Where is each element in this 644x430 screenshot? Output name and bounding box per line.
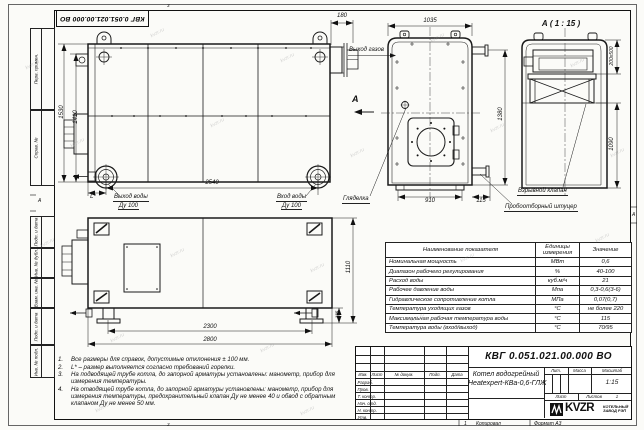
param-value: 70/95 [580, 323, 632, 332]
tb-mass-label: Масса [568, 368, 591, 373]
dim-1110: 1110 [346, 247, 352, 287]
col-header-units: Единицы измерения [536, 243, 580, 258]
param-name: Температура воды (вход/выход) [386, 323, 536, 332]
param-name: Рабочее давление воды [386, 286, 536, 295]
note-text: Все размеры для справок, допустимые откл… [71, 356, 346, 363]
explosion-valve [524, 50, 596, 103]
param-name: Расход воды [386, 276, 536, 285]
dim-2800: 2800 [190, 337, 230, 343]
doc-number-rotated-box: КВГ 0.051.021.00.000 ВО [56, 10, 149, 27]
note-item: 4.На отводящей трубе котла, до запорной … [58, 386, 346, 407]
view-a-letter: А [352, 94, 359, 104]
burner-flange-plan [62, 240, 88, 284]
note-number: 1. [58, 356, 71, 363]
note-item: 2.L* – размер выполняется согласно требо… [58, 364, 346, 371]
param-name: Гидравлическое сопротивление котла [386, 295, 536, 304]
margin-box-cap: Подп. и дата [31, 309, 42, 344]
kvzr-logo-text: KVZR [565, 402, 594, 414]
burner-opening [408, 118, 459, 166]
param-value: 0,3-0,6(3-6) [580, 286, 632, 295]
bolt-dots [111, 47, 312, 117]
zone-marker-right: А [632, 212, 635, 218]
sheets-count: 1 [608, 394, 626, 399]
margin-label: Подп. и дата [34, 312, 39, 341]
label-gas-outlet: Выход газов [349, 47, 384, 53]
note-number: 3. [58, 371, 71, 385]
margin-box-perv-primen: Перв. примен. [30, 28, 55, 110]
tb-row-utv: Утв. [358, 415, 368, 420]
param-name: Температура уходящих газов [386, 304, 536, 313]
dim-180: 180 [326, 13, 358, 19]
param-units: °С [536, 304, 580, 313]
copied-label: Копировал [476, 421, 501, 427]
dim-185: 185 [335, 300, 340, 330]
table-row: Температура уходящих газов°Сне более 220 [386, 304, 632, 313]
margin-box-cap: Взам. инв. № [31, 279, 42, 307]
param-units: куб.м/ч [536, 276, 580, 285]
margin-label: Подп. и дата [34, 218, 39, 247]
table-row: Рабочее давление водыМпа0,3-0,6(3-6) [386, 286, 632, 295]
margin-box-podp-data-2: Подп. и дата [30, 308, 55, 345]
dim-910: 910 [412, 198, 448, 204]
param-value: 0,6 [580, 258, 632, 267]
param-value: 0,07(0,7) [580, 295, 632, 304]
tb-col-izm: Изм. [356, 372, 370, 377]
gas-flow-arrow [390, 53, 396, 57]
margin-label: Перв. примен. [34, 54, 39, 85]
drawing-sheet: Перв. примен. Справ. № Подп. и дата Инв.… [0, 0, 644, 430]
param-value: 21 [580, 276, 632, 285]
dim-1530: 1530 [59, 92, 65, 132]
param-value: 40-100 [580, 267, 632, 276]
detail-a-title: А ( 1 : 15 ) [533, 19, 589, 28]
note-text: На отводящей трубе котла, до запорной ар… [71, 386, 346, 407]
table-row: Номинальная мощностьМВт0,6 [386, 258, 632, 267]
tb-col-list: Лист [370, 372, 384, 377]
col-header-name: Наименование показателя [386, 243, 536, 258]
note-number: 2. [58, 364, 71, 371]
param-name: Номинальная мощность [386, 258, 536, 267]
table-row: Температура воды (вход/выход)°С70/95 [386, 323, 632, 332]
zone-number-bottom: 1 [464, 421, 467, 427]
scale-value: 1:15 [591, 379, 633, 386]
tb-lit-label: Лит. [544, 368, 568, 373]
label-water-inlet: Вход воды [276, 194, 307, 202]
margin-label: Справ. № [34, 138, 39, 159]
margin-label: Инв. № подл. [34, 347, 39, 376]
tb-row-nachotd: Нач. отд. [358, 401, 377, 406]
label-water-outlet: Выход воды [113, 194, 149, 202]
dim-115: 115 [472, 198, 490, 204]
margin-box-inv-podl: Инв. № подл. [30, 345, 55, 378]
kvzr-logo-caption-line2: ЗАВОД РЭП [603, 409, 628, 414]
fold-mark-bottom: 3 [167, 422, 170, 427]
product-name-line1: Котел водогрейный [468, 371, 544, 378]
dim-2300: 2300 [190, 324, 230, 330]
label-explosion-valve: Взрывной клапан [517, 188, 568, 196]
note-item: 3.На подводящей трубе котла, до запорной… [58, 371, 346, 385]
plan-opening [124, 244, 160, 292]
label-sight-glass: Гляделка [342, 196, 370, 204]
note-number: 4. [58, 386, 71, 407]
parameters-table: Наименование показателя Единицы измерени… [385, 242, 632, 333]
param-units: МВт [536, 258, 580, 267]
detail-view-a [522, 28, 621, 196]
dim-200x500: 200х500 [609, 36, 615, 76]
margin-label: Взам. инв. № [34, 279, 39, 307]
tb-row-prov: Пров. [358, 387, 369, 392]
centerlines [381, 27, 480, 198]
label-water-inlet-dn: Ду 100 [281, 203, 302, 211]
margin-box-cap: Перв. примен. [31, 29, 42, 109]
margin-box-cap: Инв. № подл. [31, 346, 42, 377]
dim-l-star: L* [86, 194, 100, 200]
dim-1035: 1035 [410, 18, 450, 24]
doc-number: КВГ 0.051.021.00.000 ВО [468, 351, 629, 362]
table-row: Расход водыкуб.м/ч21 [386, 276, 632, 285]
fold-mark-top: 3 [167, 3, 170, 8]
doc-number-rotated: КВГ 0.051.021.00.000 ВО [60, 15, 145, 22]
margin-box-sprav: Справ. № [30, 110, 55, 186]
side-fitting [76, 54, 88, 66]
col-header-value: Значение [580, 243, 632, 258]
zone-marker-left: А [38, 198, 41, 204]
table-row: Диапазон рабочего регулирования%40-100 [386, 267, 632, 276]
margin-label: Инв. № дубл. [34, 249, 39, 277]
note-text: На подводящей трубе котла, до запорной а… [71, 371, 346, 385]
margin-box-podp-data-1: Подп. и дата [30, 216, 55, 248]
tb-row-razrab: Разраб. [358, 380, 374, 385]
dim-1090: 1090 [609, 124, 615, 164]
product-name-line2: Heatexpert-КВа-0,6-ГЛЖ [468, 380, 544, 387]
tb-row-nkontr: Н. контр. [358, 408, 377, 413]
dim-1380: 1380 [498, 94, 504, 134]
format-label: Формат А3 [534, 421, 561, 427]
kvzr-logo-icon [550, 403, 563, 416]
tb-col-data: Дата [446, 372, 468, 377]
tb-col-podp: Подп. [424, 372, 446, 377]
tb-row-tkontr: Т. контр. [358, 394, 377, 399]
margin-box-cap: Инв. № дубл. [31, 249, 42, 277]
sampling-pipe [472, 168, 486, 175]
label-water-outlet-dn: Ду 100 [118, 203, 139, 211]
notes-block: 1.Все размеры для справок, допустимые от… [58, 356, 346, 408]
margin-box-vzam-inv: Взам. инв. № [30, 278, 55, 308]
table-row: Гидравлическое сопротивление котлаМПа0,0… [386, 295, 632, 304]
tb-scale-label: Масштаб [591, 368, 633, 373]
note-text: L* – размер выполняется согласно требова… [71, 364, 346, 371]
param-units: °С [536, 314, 580, 323]
param-value: не более 220 [580, 304, 632, 313]
kvzr-logo-caption: КОТЕЛЬНЫЙ ЗАВОД РЭП [603, 405, 628, 414]
side-view [58, 20, 396, 196]
margin-box-cap: Подп. и дата [31, 217, 42, 247]
param-units: % [536, 267, 580, 276]
tb-sheet-label: Лист [544, 394, 578, 399]
note-item: 1.Все размеры для справок, допустимые от… [58, 356, 346, 363]
param-units: МПа [536, 295, 580, 304]
table-header-row: Наименование показателя Единицы измерени… [386, 243, 632, 258]
margin-box-inv-dubl: Инв. № дубл. [30, 248, 55, 278]
param-units: Мпа [536, 286, 580, 295]
dim-1410: 1410 [73, 97, 79, 137]
dim-2540: 2540 [192, 180, 232, 186]
title-block: Изм. Лист № докум. Подп. Дата Разраб. Пр… [355, 346, 632, 420]
sight-glass [401, 101, 410, 110]
anchor-pads [94, 223, 322, 303]
front-dimension-lines [370, 23, 512, 204]
param-name: Диапазон рабочего регулирования [386, 267, 536, 276]
param-value: 115 [580, 314, 632, 323]
tb-col-dokum: № докум. [384, 372, 424, 377]
param-units: °С [536, 323, 580, 332]
lifting-lug [96, 32, 112, 65]
margin-box-cap: Справ. № [31, 111, 42, 185]
label-sampling-fitting: Пробоотборный штуцер [504, 204, 578, 212]
param-name: Максимальная рабочая температура воды [386, 314, 536, 323]
table-row: Максимальная рабочая температура воды°С1… [386, 314, 632, 323]
support-legs [97, 308, 323, 323]
tb-sheets-label: Листов [580, 394, 608, 399]
safety-pipe [472, 47, 485, 54]
lifting-lug [312, 32, 328, 65]
